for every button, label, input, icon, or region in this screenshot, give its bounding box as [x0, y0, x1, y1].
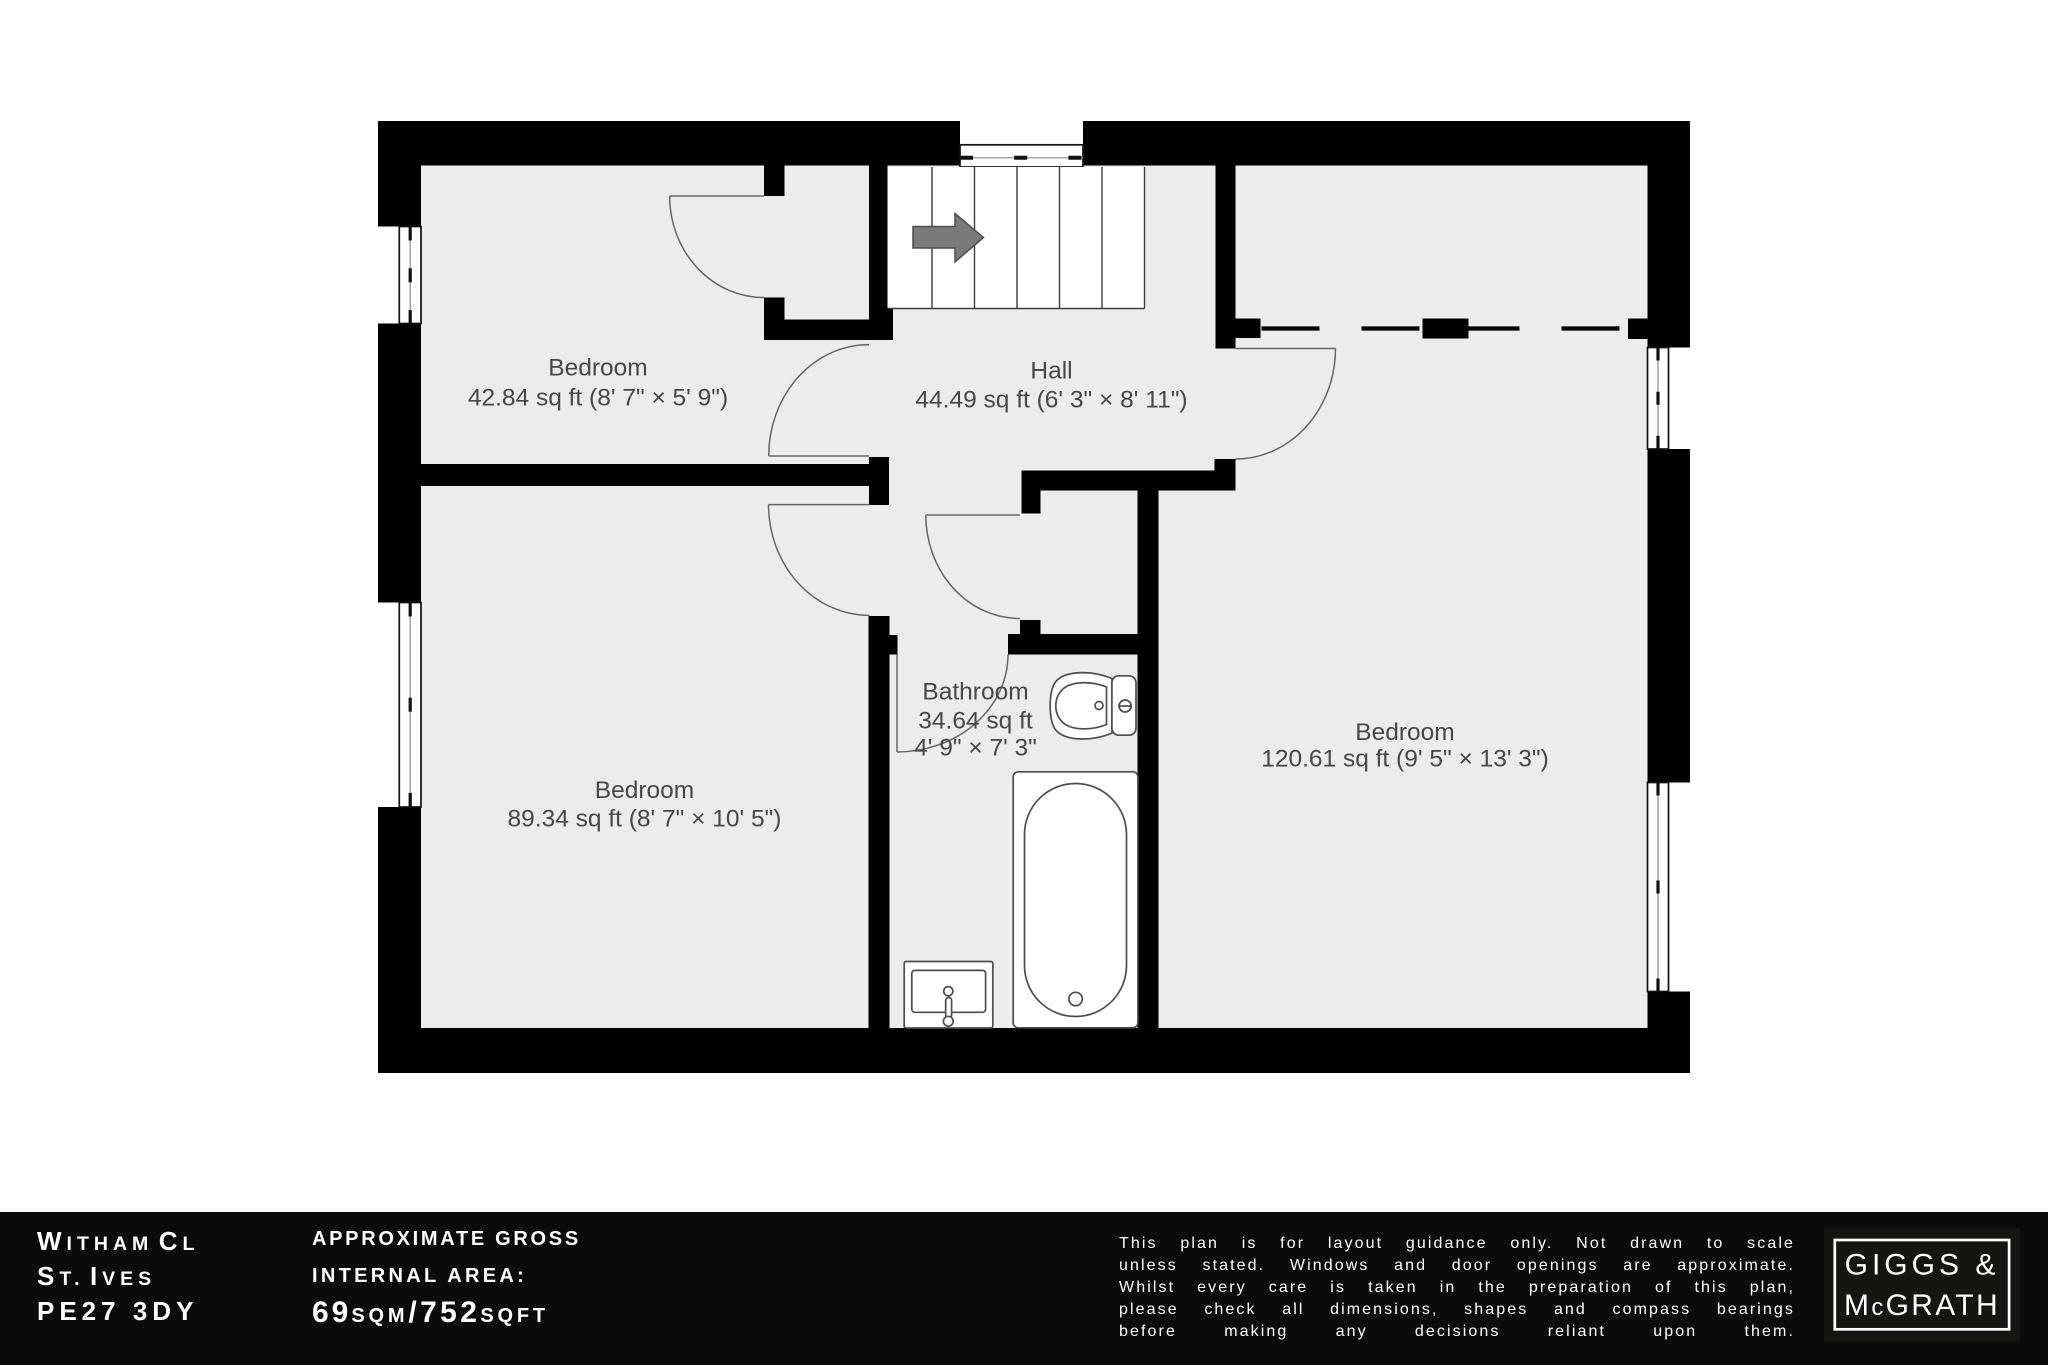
svg-text:69SQM/752SQFT: 69SQM/752SQFT [312, 1296, 549, 1329]
svg-text:McGRATH: McGRATH [1844, 1289, 2000, 1322]
svg-text:APPROXIMATE GROSS: APPROXIMATE GROSS [312, 1228, 581, 1250]
svg-text:PE27 3DY: PE27 3DY [37, 1296, 198, 1326]
svg-text:INTERNAL AREA:: INTERNAL AREA: [312, 1265, 527, 1287]
svg-text:WITHAM CL: WITHAM CL [37, 1226, 199, 1256]
svg-text:GIGGS &: GIGGS & [1845, 1249, 2000, 1282]
svg-text:ST. IVES: ST. IVES [37, 1261, 156, 1291]
